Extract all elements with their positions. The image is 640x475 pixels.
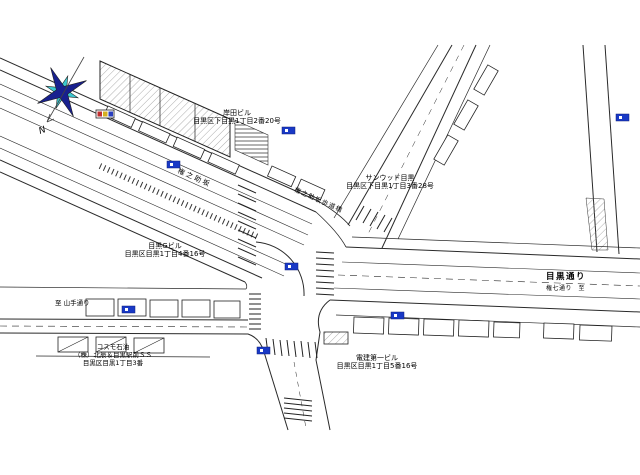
marker-glyph <box>170 163 173 166</box>
building-label-meguro-g: 目黒Gビル 目黒区目黒1丁目4番16号 <box>125 242 206 259</box>
building-address: 目黒区目黒1丁目3番 <box>74 360 152 368</box>
crosswalk-meguro-east <box>316 252 334 295</box>
building-address: 目黒区目黒1丁目4番16号 <box>125 250 206 258</box>
crosswalk-station-approach <box>356 206 392 232</box>
building-row-south-east <box>353 317 612 341</box>
north-label: N <box>38 125 48 137</box>
compass-star-primary <box>38 68 87 117</box>
building-address: 目黒区下目黒1丁目3番28号 <box>346 182 434 190</box>
building-label-cosmo-ss: コスモ石油 （株）北辰＆目黒駅前ＳＳ 目黒区目黒1丁目3番 <box>74 344 152 367</box>
marker-glyph <box>125 308 128 311</box>
building-southeast-corner <box>324 332 348 344</box>
lane-line <box>342 262 640 273</box>
building-label-kishida: 岸田ビル 目黒区下目黒1丁目2番20号 <box>193 109 281 126</box>
road-edge <box>316 300 330 430</box>
map-marker <box>282 127 295 134</box>
center-line <box>294 362 306 428</box>
road-label-meguro-dori: 目黒通り <box>546 272 586 282</box>
crosswalk-meguro-west <box>249 294 261 329</box>
building-label-denken: 電建第一ビル 目黒区目黒1丁目5番16号 <box>337 354 418 371</box>
road-label-to-west: 至 山手通り <box>55 300 90 308</box>
sidewalk-line <box>0 287 246 289</box>
alley-slope-hatch <box>586 198 608 250</box>
map-marker <box>122 306 135 313</box>
cad-map: N <box>0 0 640 475</box>
compass-rose: N <box>38 57 87 137</box>
road-edge <box>382 45 476 248</box>
marker-glyph <box>285 129 288 132</box>
building-label-sunwood: サンウッド目黒 目黒区下目黒1丁目3番28号 <box>346 174 434 191</box>
lane-line <box>334 288 640 299</box>
signal-yellow-cell <box>103 112 108 117</box>
building-row-north-west <box>86 299 240 318</box>
building-name: サンウッド目黒 <box>346 174 434 182</box>
map-marker <box>391 312 404 319</box>
center-line <box>0 326 250 327</box>
map-viewport: N <box>0 0 640 475</box>
road-edge <box>348 45 452 225</box>
building-name: 岸田ビル <box>193 109 281 117</box>
signal-red-cell <box>98 112 103 117</box>
road-meguro-dori-east <box>330 237 640 327</box>
map-marker <box>285 263 298 270</box>
center-line <box>338 275 640 286</box>
traffic-signal-icon <box>96 110 114 118</box>
corner-curve <box>245 282 247 289</box>
marker-glyph <box>394 314 397 317</box>
map-marker <box>616 114 629 121</box>
building-hatch-block <box>235 120 268 165</box>
map-marker <box>167 161 180 168</box>
signal-green-cell <box>109 112 114 117</box>
crosswalk-south-upper <box>266 338 317 358</box>
building-name: 電建第一ビル <box>337 354 418 362</box>
crosswalk-gonnosukezaka <box>238 185 256 265</box>
map-marker <box>257 347 270 354</box>
road-label-meguro-dori-sub: 権七通り 至 <box>546 285 585 292</box>
building-name: 目黒Gビル <box>125 242 206 250</box>
road-edge <box>330 300 640 312</box>
road-edge <box>0 160 262 278</box>
road-edge <box>0 319 248 320</box>
road-south-branch <box>264 300 330 430</box>
marker-glyph <box>288 265 291 268</box>
building-address: 目黒区目黒1丁目5番16号 <box>337 362 418 370</box>
crosswalk-south-lower <box>284 398 312 421</box>
marker-glyph <box>260 349 263 352</box>
building-address: 目黒区下目黒1丁目2番20号 <box>193 117 281 125</box>
sidewalk-line <box>334 45 438 218</box>
marker-glyph <box>619 116 622 119</box>
